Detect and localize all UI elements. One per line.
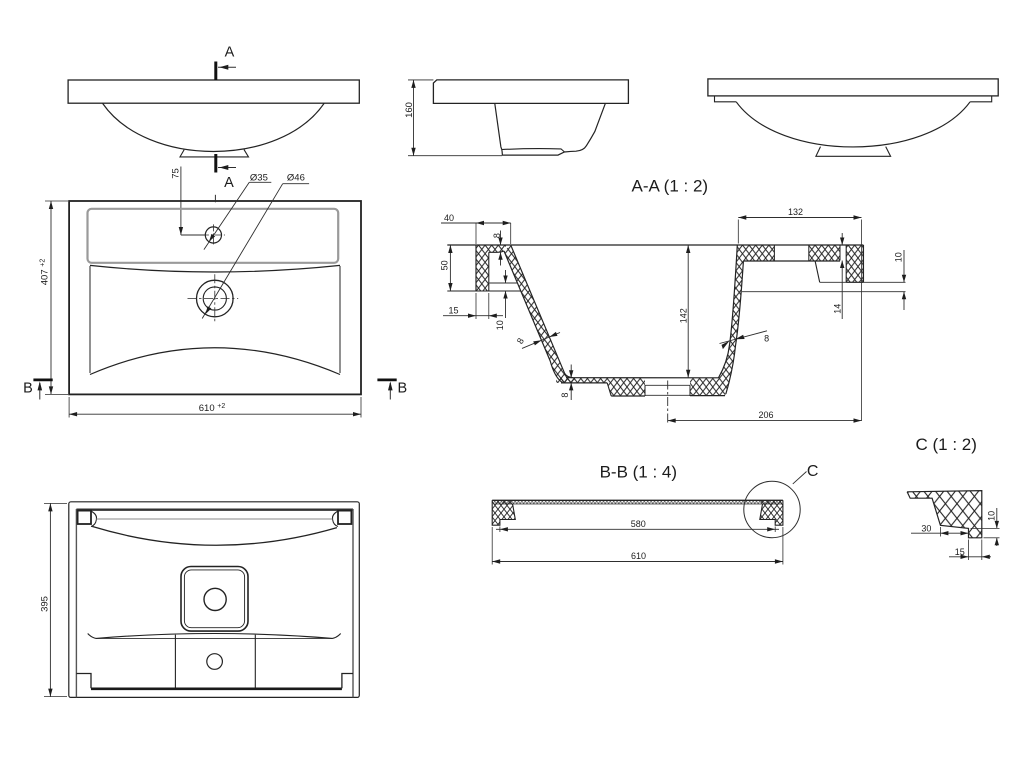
svg-text:B-B (1 : 4): B-B (1 : 4) (600, 462, 677, 481)
svg-text:15: 15 (955, 547, 965, 557)
svg-text:580: 580 (631, 519, 646, 529)
svg-text:Ø46: Ø46 (287, 173, 305, 184)
svg-text:610: 610 (631, 551, 646, 561)
svg-text:160: 160 (404, 102, 415, 118)
svg-text:10: 10 (894, 252, 904, 262)
svg-text:C (1 : 2): C (1 : 2) (915, 435, 976, 454)
svg-text:206: 206 (758, 410, 773, 420)
svg-text:395: 395 (40, 596, 51, 612)
svg-text:A: A (224, 175, 234, 191)
svg-text:40: 40 (444, 213, 454, 223)
svg-text:8: 8 (492, 233, 502, 238)
svg-text:8: 8 (764, 333, 769, 343)
svg-text:B: B (397, 380, 407, 396)
svg-text:14: 14 (832, 304, 842, 314)
svg-text:10: 10 (987, 511, 997, 521)
svg-text:75: 75 (170, 168, 181, 179)
svg-text:142: 142 (678, 308, 688, 323)
svg-text:C: C (807, 463, 819, 480)
svg-text:8: 8 (560, 393, 570, 398)
svg-text:50: 50 (440, 260, 450, 270)
svg-text:10: 10 (495, 320, 505, 330)
svg-text:A-A (1 : 2): A-A (1 : 2) (632, 177, 709, 196)
svg-text:15: 15 (448, 306, 458, 316)
svg-text:30: 30 (921, 523, 931, 533)
svg-text:A: A (225, 44, 235, 60)
svg-text:132: 132 (788, 207, 803, 217)
svg-text:B: B (23, 380, 33, 396)
